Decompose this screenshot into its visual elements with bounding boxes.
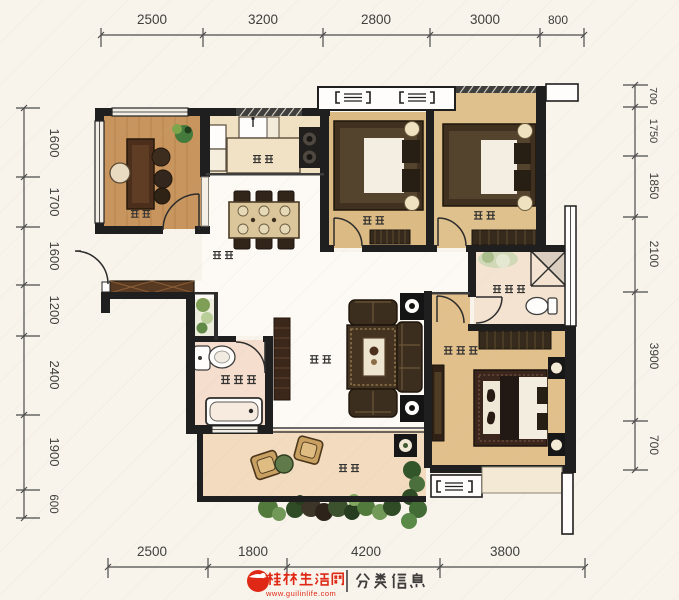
svg-text:3800: 3800 xyxy=(490,544,520,559)
svg-text:3000: 3000 xyxy=(470,12,500,27)
svg-text:1600: 1600 xyxy=(47,242,62,271)
svg-text:600: 600 xyxy=(47,494,59,513)
svg-text:3200: 3200 xyxy=(248,12,278,27)
svg-text:4200: 4200 xyxy=(351,544,381,559)
svg-text:1200: 1200 xyxy=(47,296,62,325)
svg-text:2800: 2800 xyxy=(361,12,391,27)
svg-text:700: 700 xyxy=(647,87,659,105)
svg-text:1800: 1800 xyxy=(238,544,268,559)
svg-text:1700: 1700 xyxy=(47,188,62,217)
svg-text:2400: 2400 xyxy=(47,361,62,390)
svg-text:1750: 1750 xyxy=(647,119,659,143)
svg-text:2500: 2500 xyxy=(137,544,167,559)
svg-text:800: 800 xyxy=(548,13,568,27)
svg-text:700: 700 xyxy=(647,435,661,455)
svg-text:3900: 3900 xyxy=(647,343,661,370)
svg-text:1900: 1900 xyxy=(47,438,62,467)
svg-text:2100: 2100 xyxy=(647,241,661,268)
svg-text:2500: 2500 xyxy=(137,12,167,27)
svg-text:www.guilinlife.com: www.guilinlife.com xyxy=(265,589,336,598)
svg-text:1850: 1850 xyxy=(647,173,661,200)
svg-text:1600: 1600 xyxy=(47,129,62,158)
